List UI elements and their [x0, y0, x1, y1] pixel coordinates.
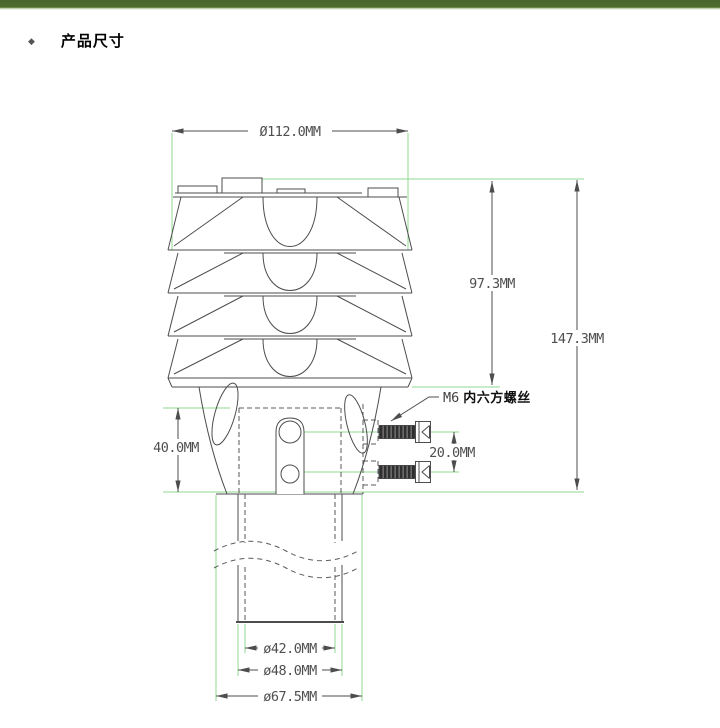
m6-screw-top — [379, 422, 431, 443]
dim-label-mount-height: 40.0MM — [153, 440, 199, 456]
mounting-pole — [214, 494, 358, 622]
vent-slot-right — [340, 393, 372, 456]
technical-drawing: Ø112.0MM 97.3MM 147.3MM 40.0MM 20.0MM M6… — [0, 0, 720, 728]
dim-label-top-diameter: Ø112.0MM — [259, 124, 320, 140]
dim-shield-height: 97.3MM — [462, 181, 522, 385]
dim-screw-spacing: 20.0MM — [424, 432, 482, 472]
dim-inner-diameter: ø42.0MM — [245, 640, 335, 657]
dim-total-height: 147.3MM — [543, 180, 611, 490]
screw-callout: M6内六方螺丝 — [391, 390, 531, 421]
screw-hole-top — [279, 421, 301, 443]
dim-label-pole-diameter: ø48.0MM — [263, 663, 317, 679]
dim-flange-diameter: ø67.5MM — [216, 688, 362, 705]
screw-hole-bottom — [281, 465, 299, 483]
dim-mount-height: 40.0MM — [146, 408, 206, 492]
vent-slot-left — [207, 380, 244, 447]
mounting-neck — [199, 380, 381, 494]
dim-top-diameter: Ø112.0MM — [172, 123, 408, 140]
dim-label-inner-diameter: ø42.0MM — [263, 641, 317, 657]
break-line-upper — [214, 541, 358, 561]
dim-label-shield-height: 97.3MM — [469, 276, 515, 292]
screw-callout-label: M6内六方螺丝 — [443, 390, 531, 406]
m6-screw-bottom — [379, 462, 431, 483]
extension-lines — [163, 133, 584, 701]
louvered-shield — [168, 178, 412, 387]
dim-label-screw-spacing: 20.0MM — [429, 445, 475, 461]
dim-pole-diameter: ø48.0MM — [238, 662, 342, 679]
dim-label-flange-diameter: ø67.5MM — [263, 689, 317, 705]
dim-label-total-height: 147.3MM — [550, 331, 604, 347]
break-line-lower — [214, 558, 358, 578]
